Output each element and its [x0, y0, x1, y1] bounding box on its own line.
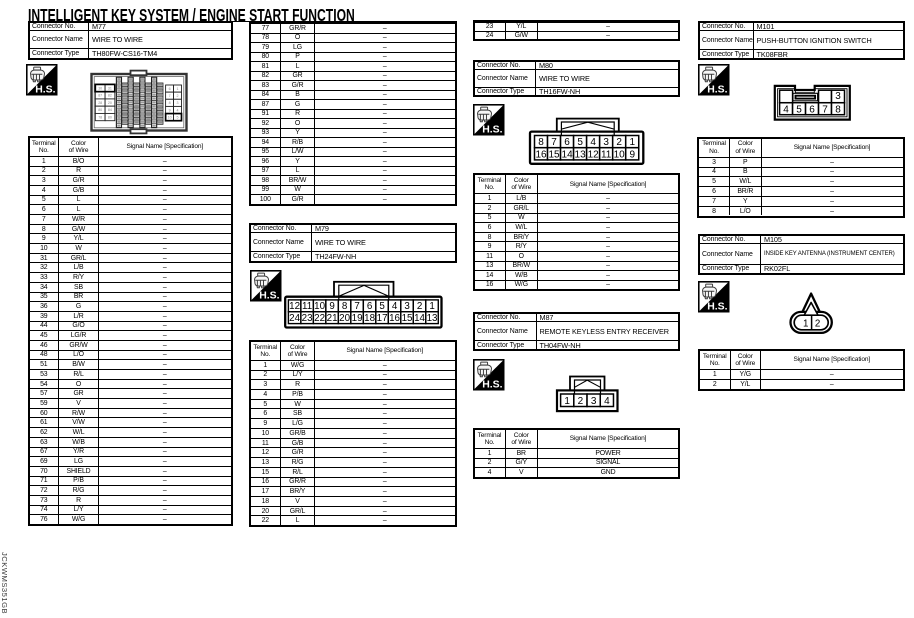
svg-text:10: 10: [314, 301, 325, 312]
svg-text:2: 2: [578, 395, 584, 406]
svg-text:28: 28: [98, 101, 102, 105]
svg-text:31: 31: [108, 86, 112, 90]
svg-text:3: 3: [591, 395, 597, 406]
svg-text:9: 9: [329, 301, 334, 312]
svg-text:87: 87: [98, 94, 102, 98]
svg-text:4: 4: [590, 137, 596, 148]
svg-text:18: 18: [364, 313, 375, 324]
svg-text:6: 6: [809, 104, 815, 115]
svg-text:20: 20: [108, 101, 112, 105]
svg-text:3: 3: [404, 301, 410, 312]
svg-text:2: 2: [177, 94, 179, 98]
svg-text:23: 23: [302, 313, 313, 324]
svg-text:7: 7: [822, 104, 828, 115]
svg-text:H.S.: H.S.: [482, 380, 502, 391]
svg-text:1: 1: [803, 318, 808, 329]
svg-text:10: 10: [614, 149, 626, 160]
svg-text:4: 4: [392, 301, 398, 312]
svg-text:2: 2: [616, 137, 622, 148]
svg-text:6: 6: [367, 301, 373, 312]
svg-text:30: 30: [98, 86, 102, 90]
svg-text:12: 12: [289, 301, 300, 312]
svg-text:11: 11: [601, 149, 612, 160]
svg-text:84: 84: [108, 108, 112, 112]
svg-text:13: 13: [427, 313, 438, 324]
svg-text:15: 15: [548, 149, 560, 160]
svg-text:9: 9: [629, 149, 635, 160]
svg-text:8: 8: [538, 137, 544, 148]
svg-text:3: 3: [603, 137, 609, 148]
svg-text:14: 14: [562, 149, 574, 160]
svg-text:5: 5: [379, 301, 385, 312]
svg-text:17: 17: [377, 313, 388, 324]
svg-text:20: 20: [339, 313, 350, 324]
svg-text:H.S.: H.S.: [259, 290, 279, 301]
svg-text:H.S.: H.S.: [707, 302, 727, 313]
svg-text:8: 8: [342, 301, 348, 312]
svg-text:19: 19: [352, 313, 363, 324]
svg-text:3: 3: [177, 101, 179, 105]
svg-text:14: 14: [414, 313, 425, 324]
svg-text:1: 1: [429, 301, 434, 312]
svg-text:7: 7: [551, 137, 557, 148]
svg-text:15: 15: [402, 313, 413, 324]
svg-text:6: 6: [169, 87, 171, 91]
svg-text:2: 2: [815, 318, 820, 329]
svg-text:11: 11: [302, 301, 312, 312]
svg-text:12: 12: [588, 149, 600, 160]
svg-text:10: 10: [168, 116, 172, 120]
svg-text:8: 8: [835, 104, 841, 115]
svg-text:H.S.: H.S.: [482, 124, 502, 135]
svg-text:3: 3: [835, 91, 841, 102]
svg-text:80: 80: [108, 116, 112, 120]
svg-text:5: 5: [177, 116, 179, 120]
svg-text:4: 4: [783, 104, 789, 115]
svg-text:4: 4: [604, 395, 610, 406]
svg-text:8: 8: [169, 101, 171, 105]
svg-text:1: 1: [177, 87, 179, 91]
svg-text:24: 24: [289, 313, 300, 324]
svg-text:80: 80: [98, 108, 102, 112]
svg-text:7: 7: [354, 301, 359, 312]
svg-text:13: 13: [575, 149, 587, 160]
svg-text:1: 1: [564, 395, 570, 406]
svg-text:1: 1: [629, 137, 635, 148]
svg-text:5: 5: [796, 104, 802, 115]
svg-text:2: 2: [417, 301, 422, 312]
svg-text:78: 78: [98, 116, 102, 120]
svg-text:H.S.: H.S.: [707, 85, 727, 96]
svg-text:5: 5: [577, 137, 583, 148]
svg-text:16: 16: [535, 149, 547, 160]
svg-text:6: 6: [564, 137, 570, 148]
svg-text:7: 7: [169, 94, 171, 98]
svg-text:22: 22: [314, 313, 325, 324]
svg-text:16: 16: [389, 313, 400, 324]
svg-text:82: 82: [108, 94, 112, 98]
svg-text:21: 21: [327, 313, 338, 324]
svg-text:H.S.: H.S.: [35, 84, 55, 95]
svg-text:4: 4: [177, 108, 179, 112]
svg-text:9: 9: [169, 108, 171, 112]
